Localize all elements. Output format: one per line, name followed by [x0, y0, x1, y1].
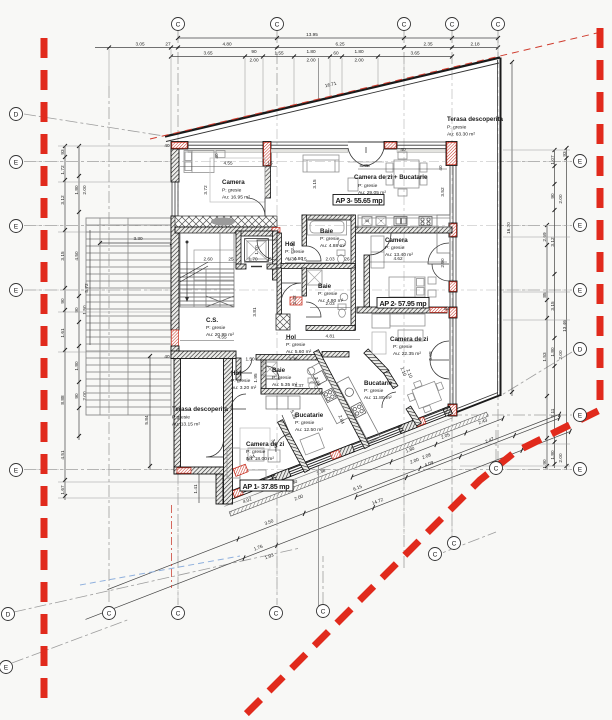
svg-text:E: E	[578, 222, 583, 229]
svg-text:4.80: 4.80	[222, 42, 232, 47]
svg-text:25: 25	[228, 257, 234, 262]
svg-text:40: 40	[164, 354, 170, 359]
svg-text:AP 2- 57.95 mp: AP 2- 57.95 mp	[380, 299, 428, 308]
svg-text:P: gresie: P: gresie	[286, 342, 306, 348]
svg-text:P: gresie: P: gresie	[246, 449, 266, 455]
svg-text:1.72: 1.72	[60, 165, 65, 175]
svg-text:2.00: 2.00	[558, 350, 563, 360]
svg-text:3.37: 3.37	[294, 383, 304, 388]
svg-text:2.03: 2.03	[325, 257, 335, 262]
svg-text:AP 1- 37.85 mp: AP 1- 37.85 mp	[243, 482, 291, 491]
svg-text:3.05: 3.05	[135, 42, 145, 47]
svg-text:Camera: Camera	[385, 237, 408, 244]
svg-text:Baie: Baie	[320, 228, 334, 235]
svg-text:Au: 5.60 m²: Au: 5.60 m²	[286, 349, 312, 355]
svg-text:26: 26	[344, 257, 350, 262]
svg-text:2.00: 2.00	[354, 58, 364, 63]
svg-text:C: C	[450, 21, 455, 28]
svg-text:3.52: 3.52	[440, 187, 445, 197]
svg-text:E: E	[578, 287, 583, 294]
svg-text:D: D	[578, 346, 583, 353]
svg-text:P: gresie: P: gresie	[358, 183, 378, 189]
svg-text:3.65: 3.65	[410, 51, 420, 56]
svg-text:Terasa descoperita: Terasa descoperita	[172, 406, 229, 413]
svg-text:1.07: 1.07	[550, 155, 555, 165]
svg-text:1.70: 1.70	[254, 245, 259, 255]
svg-text:1.80: 1.80	[306, 49, 316, 54]
svg-text:C.S.: C.S.	[206, 317, 218, 324]
svg-text:2.60: 2.60	[203, 257, 213, 262]
svg-text:C: C	[496, 21, 501, 28]
svg-text:1.53: 1.53	[542, 352, 547, 362]
svg-text:P: gresie: P: gresie	[222, 188, 242, 194]
svg-text:93: 93	[562, 151, 567, 157]
svg-text:60: 60	[333, 51, 339, 56]
svg-text:C: C	[494, 465, 499, 472]
svg-text:1.41: 1.41	[193, 484, 198, 494]
svg-text:C: C	[321, 608, 326, 615]
svg-text:Au: 22.35 m²: Au: 22.35 m²	[393, 351, 421, 357]
svg-text:3.30: 3.30	[133, 236, 143, 241]
svg-text:3.15: 3.15	[550, 301, 555, 311]
svg-text:8.45: 8.45	[359, 163, 369, 168]
svg-text:Camera de zi + Bucatarie: Camera de zi + Bucatarie	[354, 174, 428, 181]
svg-text:40: 40	[214, 153, 219, 159]
svg-text:40: 40	[438, 165, 443, 171]
svg-text:4.50: 4.50	[74, 251, 79, 261]
svg-text:13.95: 13.95	[306, 32, 318, 37]
svg-text:P: gresie: P: gresie	[206, 325, 226, 331]
svg-text:15: 15	[267, 161, 273, 166]
svg-text:40: 40	[164, 143, 170, 148]
svg-text:3.15: 3.15	[312, 179, 317, 189]
svg-text:Au: 3.20 m²: Au: 3.20 m²	[231, 385, 257, 391]
svg-text:27: 27	[165, 42, 171, 47]
svg-text:1.80: 1.80	[74, 361, 79, 371]
svg-text:E: E	[578, 158, 583, 165]
svg-text:1.70: 1.70	[248, 257, 258, 262]
svg-text:1.67: 1.67	[60, 485, 65, 495]
svg-text:Au: 63.30 m²: Au: 63.30 m²	[447, 132, 475, 138]
svg-text:8.88: 8.88	[60, 395, 65, 405]
svg-text:1.80: 1.80	[550, 450, 555, 460]
svg-text:C: C	[107, 610, 112, 617]
svg-text:90: 90	[74, 393, 79, 399]
svg-text:AP 3- 55.65 mp: AP 3- 55.65 mp	[336, 196, 384, 205]
svg-text:85: 85	[542, 292, 547, 298]
svg-text:P: gresie: P: gresie	[320, 236, 340, 242]
svg-text:4.55: 4.55	[223, 161, 233, 166]
svg-text:1.55: 1.55	[274, 51, 284, 56]
svg-text:Au: 12.50 m²: Au: 12.50 m²	[295, 427, 323, 433]
svg-text:Baie: Baie	[318, 283, 332, 290]
svg-text:C: C	[274, 610, 279, 617]
svg-text:Au: 11.80 m²: Au: 11.80 m²	[364, 395, 392, 401]
svg-text:4.81: 4.81	[325, 334, 335, 339]
svg-text:D: D	[6, 611, 11, 618]
svg-text:5.84: 5.84	[144, 415, 149, 425]
svg-text:P: gresie: P: gresie	[295, 420, 315, 426]
svg-text:Au: 4.88 m²: Au: 4.88 m²	[320, 243, 346, 249]
svg-text:15: 15	[301, 257, 307, 262]
svg-text:C: C	[176, 21, 181, 28]
svg-text:2.90: 2.90	[440, 258, 445, 268]
svg-text:93: 93	[60, 149, 65, 155]
svg-text:3.72: 3.72	[203, 185, 208, 195]
svg-text:Terasa descoperita: Terasa descoperita	[447, 116, 504, 123]
svg-text:1.95: 1.95	[253, 373, 258, 383]
svg-text:1.80: 1.80	[550, 347, 555, 357]
svg-text:Baie: Baie	[272, 367, 286, 374]
svg-text:P:gresie: P:gresie	[172, 415, 190, 421]
svg-text:Hol: Hol	[231, 370, 241, 377]
svg-text:3.81: 3.81	[252, 307, 257, 317]
svg-text:4.62: 4.62	[393, 256, 403, 261]
svg-text:13.46: 13.46	[562, 320, 567, 332]
svg-text:2.40: 2.40	[290, 241, 295, 251]
svg-text:P: gresie: P: gresie	[231, 378, 251, 384]
svg-text:6.08: 6.08	[428, 351, 433, 361]
svg-text:3.65: 3.65	[203, 51, 213, 56]
svg-text:P: gresie: P: gresie	[447, 125, 467, 131]
svg-text:4.51: 4.51	[60, 450, 65, 460]
svg-text:Bucatarie: Bucatarie	[364, 380, 393, 387]
svg-text:E: E	[14, 223, 19, 230]
svg-text:D: D	[14, 111, 19, 118]
svg-text:Hol: Hol	[286, 334, 296, 341]
svg-text:1.90: 1.90	[542, 459, 547, 469]
svg-text:E: E	[14, 159, 19, 166]
svg-text:Camera de zi: Camera de zi	[390, 336, 428, 343]
svg-text:P: gresie: P: gresie	[393, 344, 413, 350]
svg-text:P: gresie: P: gresie	[318, 291, 338, 297]
svg-text:C: C	[452, 540, 457, 547]
svg-text:E: E	[14, 467, 19, 474]
svg-text:Bucatarie: Bucatarie	[295, 412, 324, 419]
svg-text:Au: 13.15 m²: Au: 13.15 m²	[172, 422, 200, 428]
svg-text:E: E	[578, 466, 583, 473]
svg-text:3.12: 3.12	[550, 237, 555, 247]
svg-text:C: C	[176, 610, 181, 617]
svg-text:45: 45	[365, 218, 370, 223]
svg-text:5.72: 5.72	[84, 283, 89, 293]
svg-text:Camera de zi: Camera de zi	[246, 441, 284, 448]
svg-text:6.25: 6.25	[335, 42, 345, 47]
svg-text:3.12: 3.12	[60, 195, 65, 205]
svg-text:E: E	[4, 664, 9, 671]
svg-text:C: C	[433, 551, 438, 558]
svg-text:P: gresie: P: gresie	[272, 375, 292, 381]
svg-text:1.61: 1.61	[60, 328, 65, 338]
svg-text:90: 90	[60, 298, 65, 304]
svg-text:P: gresie: P: gresie	[385, 245, 405, 251]
svg-text:Au: 16.95 m²: Au: 16.95 m²	[222, 195, 250, 201]
svg-text:2.18: 2.18	[470, 42, 480, 47]
svg-text:2.00: 2.00	[249, 58, 259, 63]
svg-text:1.80: 1.80	[354, 49, 364, 54]
svg-text:C: C	[402, 21, 407, 28]
svg-text:2.35: 2.35	[423, 42, 433, 47]
svg-text:Camera: Camera	[222, 179, 245, 186]
svg-text:P: gresie: P: gresie	[364, 388, 384, 394]
svg-text:E: E	[14, 287, 19, 294]
svg-text:2.38: 2.38	[288, 357, 298, 362]
svg-text:3.15: 3.15	[60, 251, 65, 261]
svg-text:90: 90	[251, 49, 257, 54]
svg-text:2.00: 2.00	[558, 453, 563, 463]
svg-text:2.00: 2.00	[558, 194, 563, 204]
svg-text:90: 90	[550, 193, 555, 199]
svg-text:2.00: 2.00	[82, 185, 87, 195]
svg-text:4.55: 4.55	[217, 335, 227, 340]
svg-text:1.80: 1.80	[74, 185, 79, 195]
svg-text:C: C	[275, 21, 280, 28]
svg-text:2.00: 2.00	[306, 58, 316, 63]
svg-text:1.50: 1.50	[245, 357, 255, 362]
svg-text:2.03: 2.03	[325, 301, 335, 306]
svg-text:40: 40	[400, 147, 406, 152]
svg-text:1.30: 1.30	[287, 257, 297, 262]
svg-text:25: 25	[266, 257, 272, 262]
svg-text:E: E	[578, 412, 583, 419]
svg-text:2.42: 2.42	[292, 295, 297, 305]
svg-text:16.70: 16.70	[506, 222, 511, 234]
